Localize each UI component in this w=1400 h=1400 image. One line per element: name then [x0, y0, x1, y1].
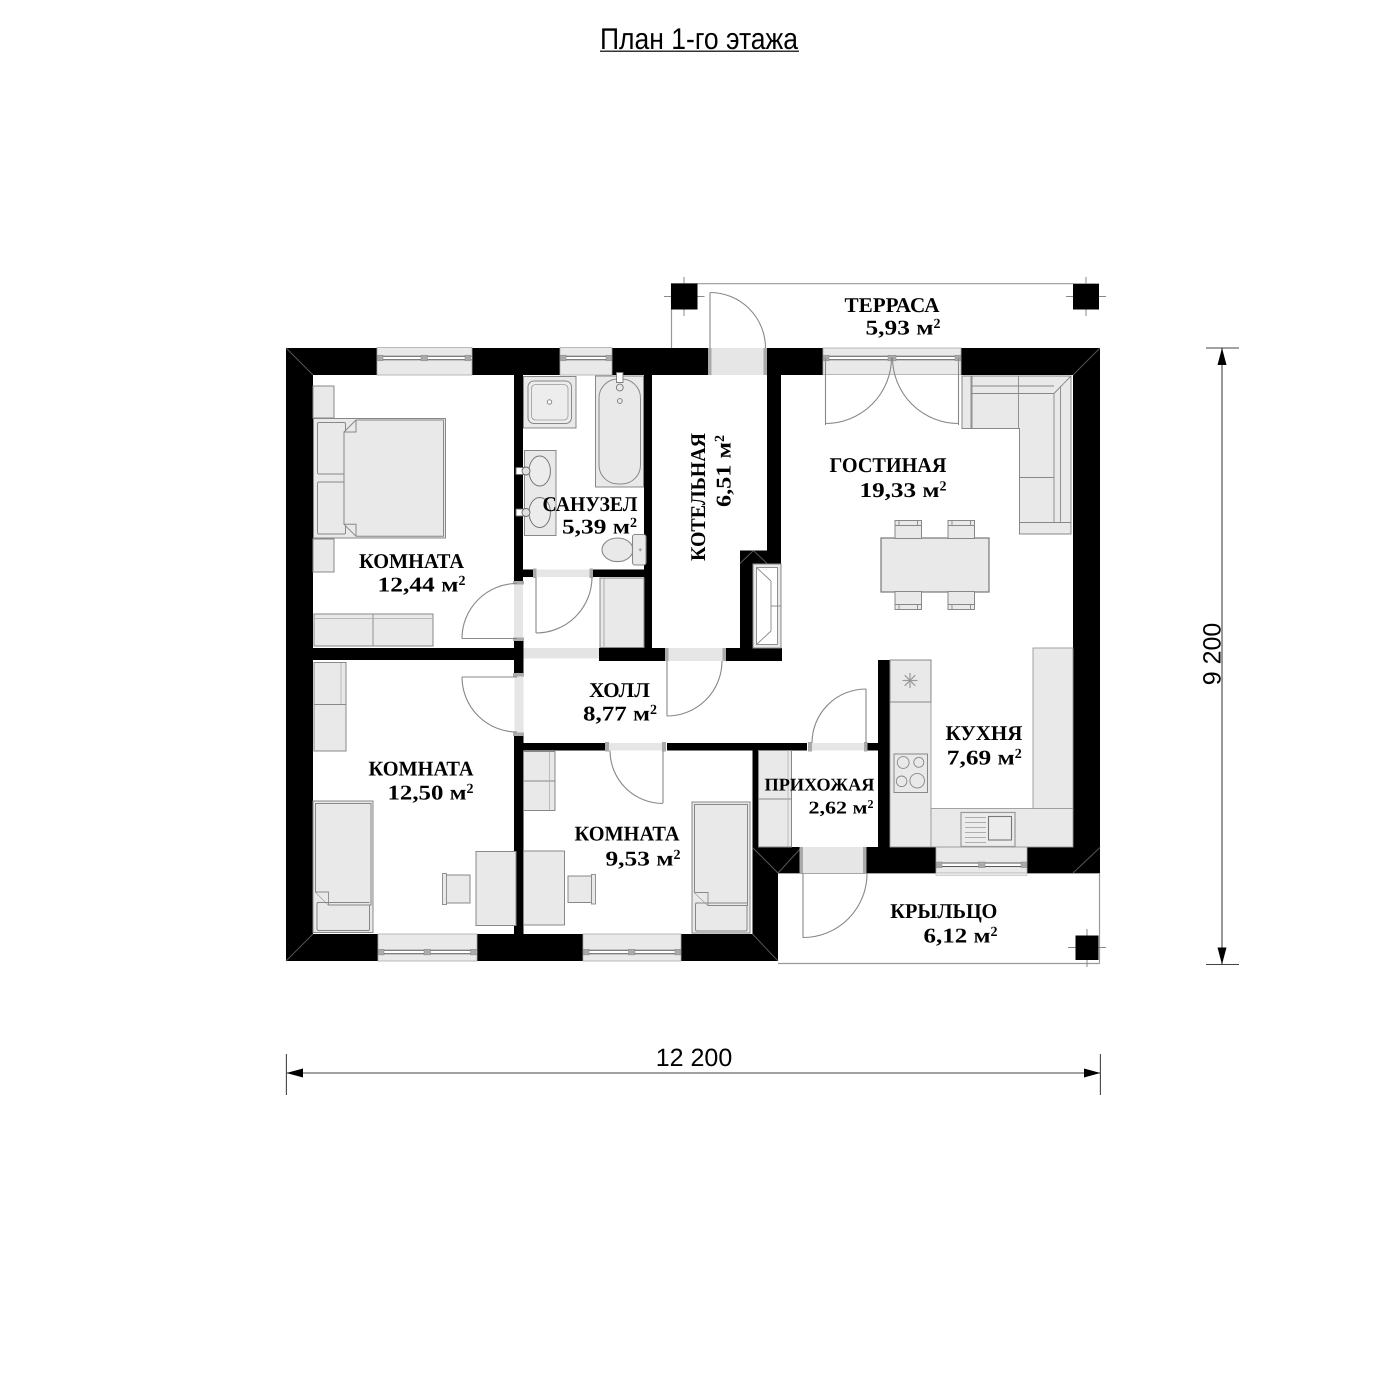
svg-text:ПРИХОЖАЯ: ПРИХОЖАЯ [765, 775, 875, 795]
svg-text:КУХНЯ: КУХНЯ [946, 721, 1023, 745]
svg-text:8,77 м2: 8,77 м2 [583, 702, 657, 726]
svg-text:КОМНАТА: КОМНАТА [359, 549, 465, 573]
svg-text:КОМНАТА: КОМНАТА [369, 756, 475, 780]
svg-text:2,62 м2: 2,62 м2 [809, 797, 874, 818]
svg-text:12,50 м2: 12,50 м2 [388, 781, 474, 805]
svg-text:5,39 м2: 5,39 м2 [562, 515, 637, 539]
svg-text:12,44 м2: 12,44 м2 [378, 573, 466, 597]
svg-text:КРЫЛЬЦО: КРЫЛЬЦО [890, 899, 997, 923]
svg-text:9 200: 9 200 [1199, 623, 1227, 686]
svg-text:6,51 м2: 6,51 м2 [712, 435, 736, 507]
svg-text:САНУЗЕЛ: САНУЗЕЛ [543, 492, 638, 516]
svg-text:19,33 м2: 19,33 м2 [860, 478, 947, 502]
svg-text:КОМНАТА: КОМНАТА [575, 822, 681, 846]
svg-text:7,69 м2: 7,69 м2 [947, 745, 1022, 769]
svg-text:12 200: 12 200 [656, 1044, 732, 1072]
svg-text:КОТЕЛЬНАЯ: КОТЕЛЬНАЯ [686, 433, 710, 561]
svg-text:ТЕРРАСА: ТЕРРАСА [845, 293, 941, 317]
svg-text:ГОСТИНАЯ: ГОСТИНАЯ [830, 453, 947, 477]
svg-text:9,53 м2: 9,53 м2 [606, 847, 681, 871]
svg-text:5,93 м2: 5,93 м2 [866, 316, 941, 340]
svg-text:ХОЛЛ: ХОЛЛ [589, 678, 650, 702]
svg-text:6,12 м2: 6,12 м2 [924, 924, 998, 948]
